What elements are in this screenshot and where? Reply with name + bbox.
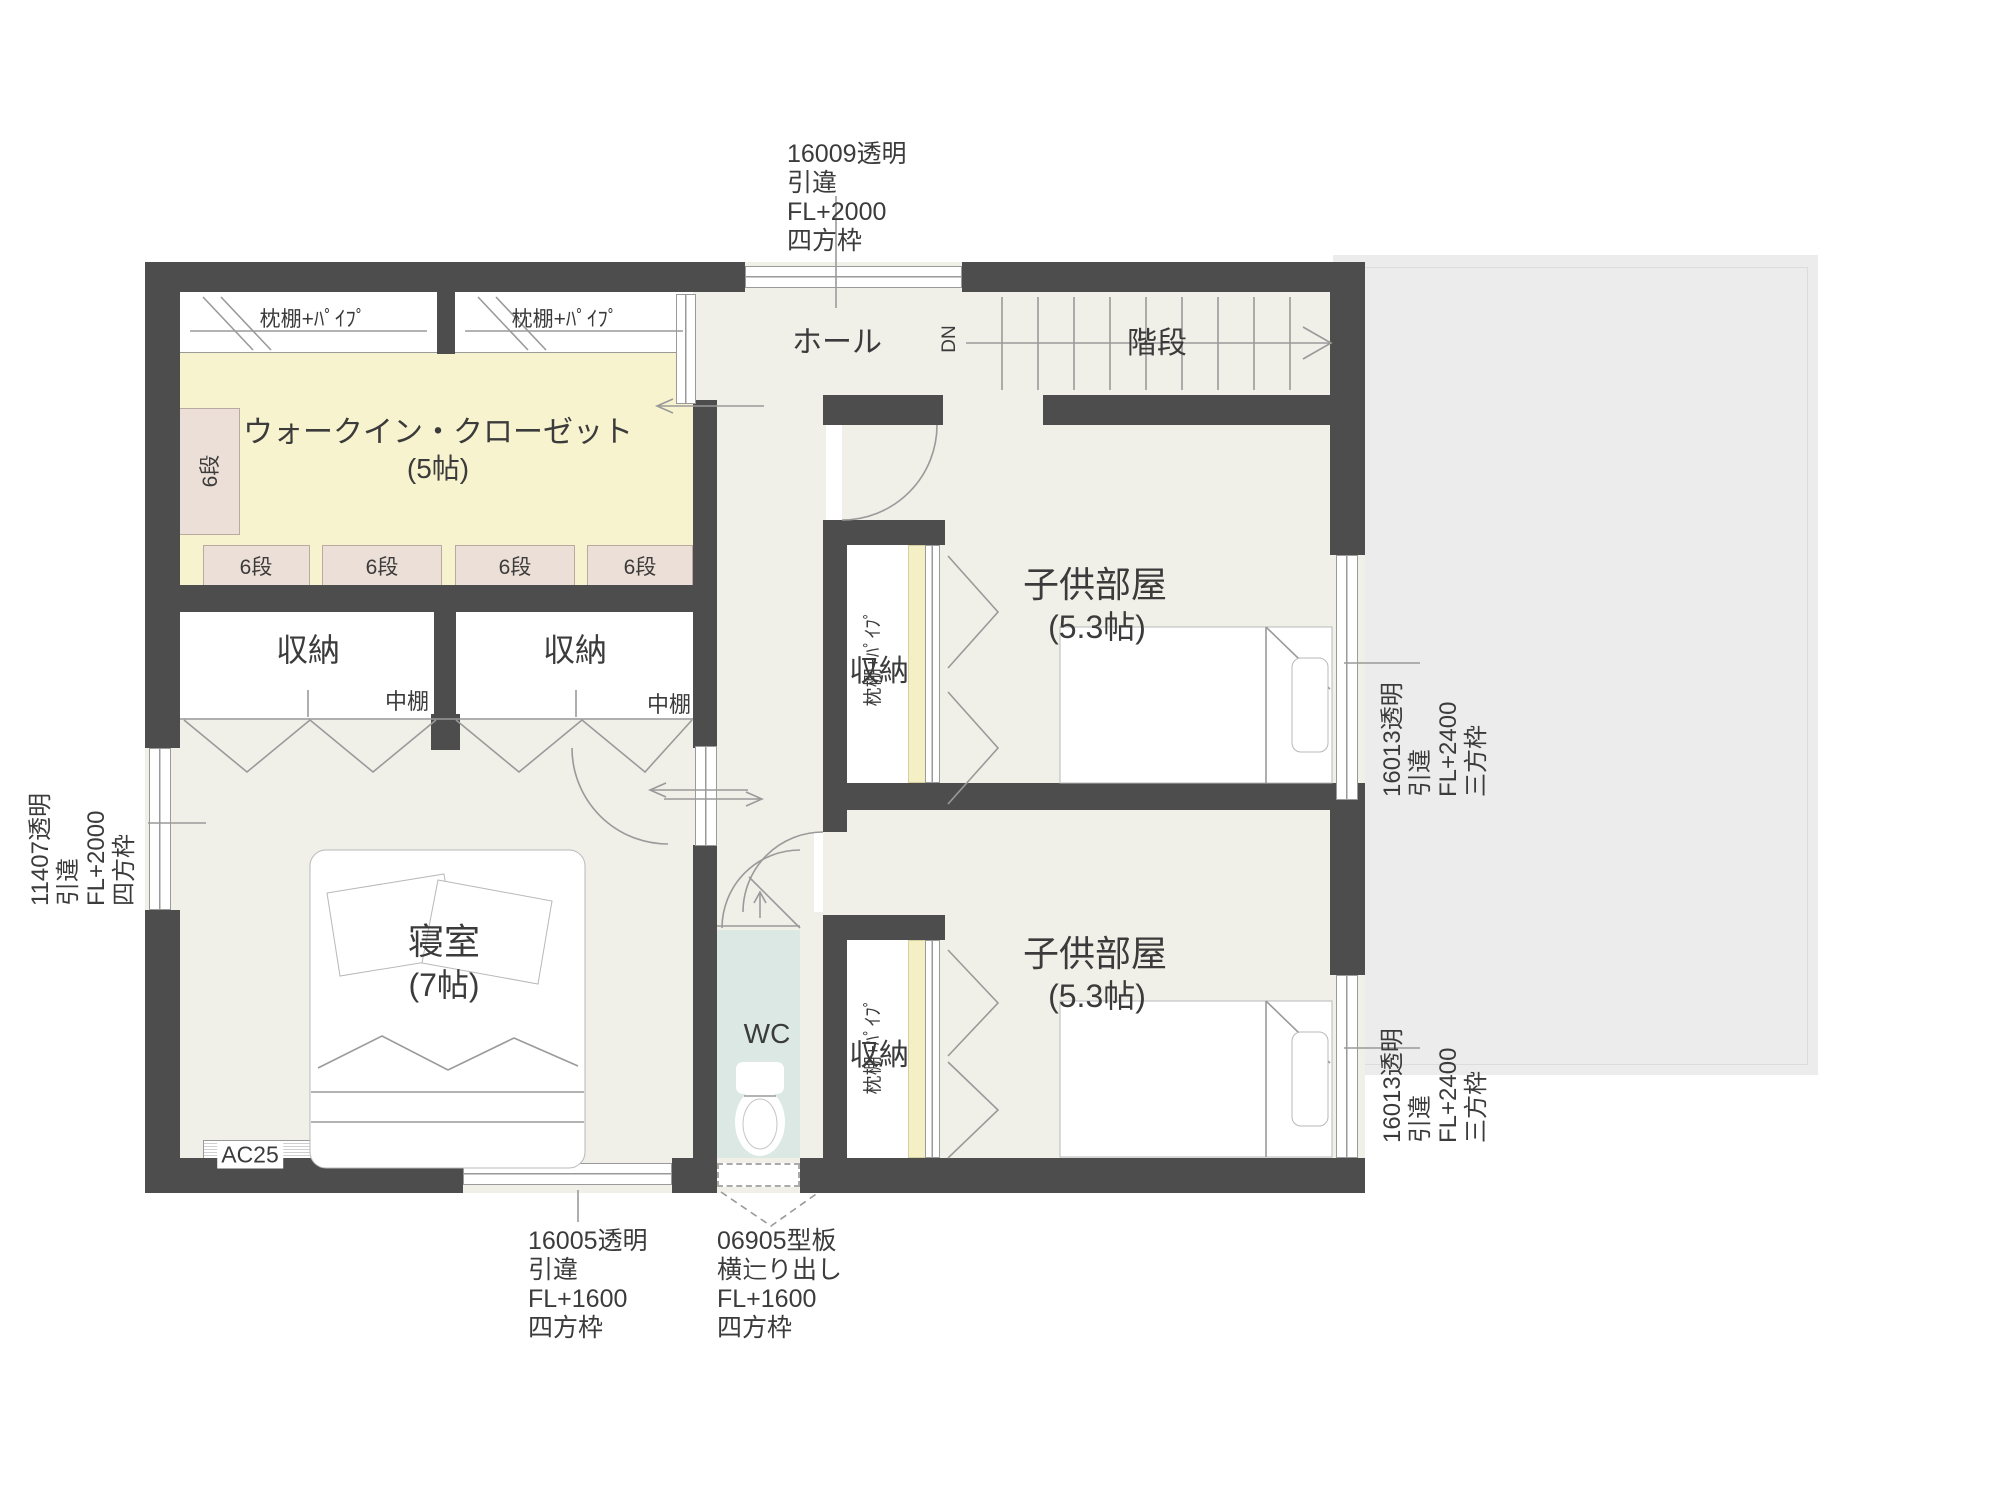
- sliding-door-arrows: [650, 399, 764, 806]
- shelf-label-closet2: 枕棚+ﾊﾟｲﾌﾟ: [859, 971, 883, 1121]
- door-arc-child1: [826, 425, 937, 520]
- shelf-label-storage2: 中棚: [647, 687, 691, 719]
- toilet-icon: [735, 1062, 785, 1156]
- awning-window-swing: [721, 1192, 819, 1226]
- annotation-bottom-window-1: 16005透明 引違 FL+1600 四方枠: [528, 1227, 648, 1343]
- door-arc-wc: [717, 850, 800, 928]
- annotation-top-window: 16009透明 引違 FL+2000 四方枠: [787, 140, 907, 256]
- wic-6dan-vertical-label: 6段: [197, 441, 221, 501]
- bed-bedroom: [310, 850, 585, 1168]
- floor-plan: ウォークイン・クローゼット (5帖) ホール 階段 DN 子供部屋 (5.3帖)…: [0, 0, 1999, 1500]
- room-label-bedroom: 寝室: [408, 913, 480, 965]
- stairs-direction-label: DN: [938, 319, 962, 359]
- shelf-label-storage1: 中棚: [385, 684, 429, 716]
- wic-6dan-label-4: 6段: [624, 551, 657, 581]
- room-label-stairs: 階段: [1127, 318, 1187, 362]
- room-label-wic: ウォークイン・クローゼット: [243, 407, 633, 451]
- wic-6dan-label-3: 6段: [499, 551, 532, 581]
- room-size-bedroom: (7帖): [408, 960, 479, 1006]
- room-label-child2: 子供部屋: [1023, 925, 1167, 977]
- room-size-child2: (5.3帖): [1048, 971, 1146, 1017]
- plan-linework: [0, 0, 1999, 1500]
- shelf-label-closet1: 枕棚+ﾊﾟｲﾌﾟ: [859, 583, 883, 733]
- room-size-wic: (5帖): [407, 447, 469, 487]
- room-label-storage1: 収納: [276, 625, 340, 671]
- bed-child-2: [1060, 1001, 1332, 1157]
- room-label-child1: 子供部屋: [1023, 556, 1167, 608]
- wic-6dan-label-2: 6段: [366, 551, 399, 581]
- room-label-wc: WC: [744, 1018, 791, 1050]
- door-arc-child2: [743, 832, 823, 918]
- room-label-storage2: 収納: [543, 625, 607, 671]
- air-conditioner-label: AC25: [217, 1142, 283, 1169]
- annotation-right-window-1: 16013透明 引違 FL+2400 三方枠: [1379, 627, 1497, 797]
- room-label-hall: ホール: [792, 317, 882, 361]
- wic-shelf-label-left: 枕棚+ﾊﾟｲﾌﾟ: [260, 303, 367, 333]
- wic-shelf-label-right: 枕棚+ﾊﾟｲﾌﾟ: [512, 303, 619, 333]
- room-size-child1: (5.3帖): [1048, 602, 1146, 648]
- annotation-right-window-2: 16013透明 引違 FL+2400 三方枠: [1379, 973, 1497, 1143]
- annotation-left-window: 11407透明 引違 FL+2000 四方枠: [27, 736, 145, 906]
- annotation-bottom-window-2: 06905型板 横辷り出し FL+1600 四方枠: [717, 1227, 842, 1343]
- wic-6dan-label-1: 6段: [240, 551, 273, 581]
- bed-child-1: [1060, 627, 1332, 783]
